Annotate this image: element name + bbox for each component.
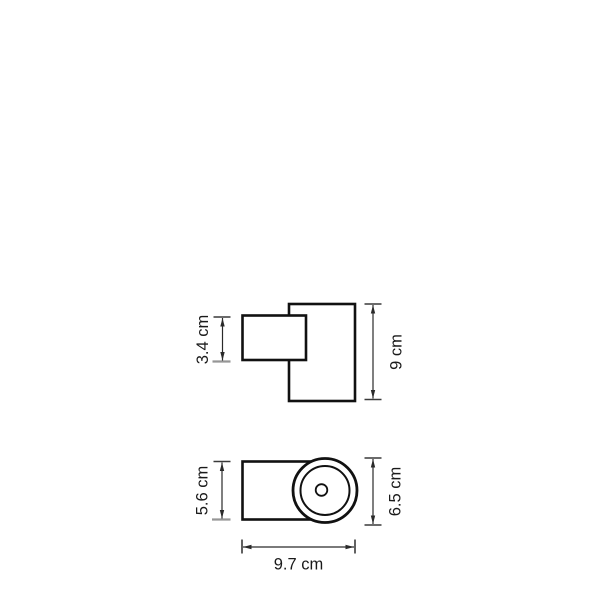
dim-overall-width: 9.7 cm	[242, 540, 355, 574]
dim-label-head-diameter: 6.5 cm	[387, 467, 405, 517]
arrow-up-icon	[371, 305, 375, 314]
mounting-plate-side-outline	[243, 316, 307, 361]
side-view: 3.4 cm 9 cm	[194, 304, 406, 401]
dim-label-plate-height: 3.4 cm	[194, 315, 212, 365]
arrow-up-icon	[371, 459, 375, 468]
arrow-up-icon	[220, 463, 224, 472]
dim-label-body-depth: 5.6 cm	[194, 466, 212, 516]
dim-plate-height: 3.4 cm	[194, 315, 231, 365]
dim-label-body-height: 9 cm	[388, 334, 406, 370]
fixture-dimension-diagram: 3.4 cm 9 cm	[0, 0, 600, 600]
dim-label-overall-width: 9.7 cm	[274, 556, 324, 574]
dim-head-diameter: 6.5 cm	[365, 458, 405, 525]
dimension-drawing-page: 3.4 cm 9 cm	[0, 0, 600, 600]
dim-body-height: 9 cm	[365, 304, 406, 400]
top-view: 5.6 cm 6.5 cm 9.7 cm	[194, 458, 405, 574]
lamp-head-center-hole	[316, 484, 328, 496]
dim-body-depth: 5.6 cm	[194, 462, 231, 520]
arrow-up-icon	[220, 318, 224, 327]
arrow-right-icon	[346, 545, 355, 549]
arrow-down-icon	[371, 516, 375, 525]
arrow-down-icon	[371, 390, 375, 399]
arrow-left-icon	[243, 545, 252, 549]
arrow-down-icon	[220, 352, 224, 361]
arrow-down-icon	[220, 510, 224, 519]
